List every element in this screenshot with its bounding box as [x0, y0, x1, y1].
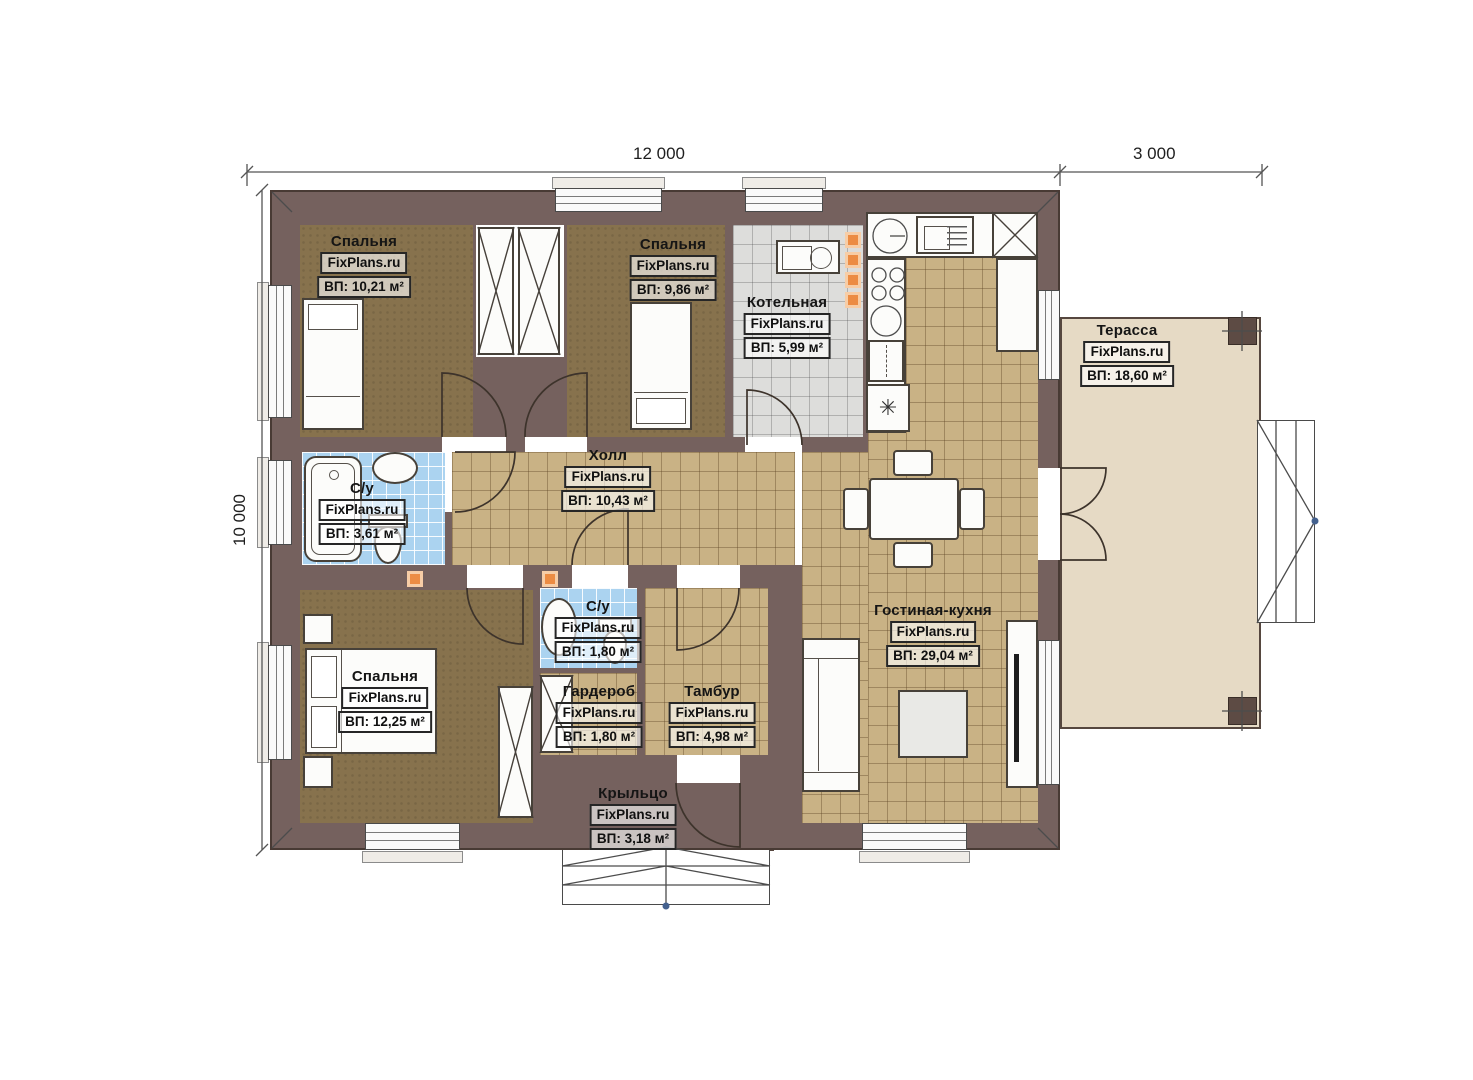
drainer-lines	[947, 226, 967, 248]
brand-watermark: FixPlans.ru	[744, 313, 831, 335]
nightstand	[303, 614, 333, 644]
door-opening-boiler	[745, 437, 802, 452]
room-label-boiler: Котельная FixPlans.ru ВП: 5,99 м²	[744, 294, 831, 359]
door-opening-terrace	[1038, 468, 1060, 560]
bed-single	[302, 298, 364, 430]
room-name: Гардероб	[563, 683, 636, 700]
coffee-table	[898, 690, 968, 758]
room-area: ВП: 1,80 м²	[556, 726, 642, 748]
room-name: С/у	[350, 480, 374, 497]
room-label-bedroom3: Спальня FixPlans.ru ВП: 12,25 м²	[338, 668, 432, 733]
tv-screen	[1014, 654, 1019, 762]
sofa-armrest	[804, 658, 858, 659]
room-name: Гостиная-кухня	[874, 602, 992, 619]
boiler-unit	[782, 246, 812, 270]
brand-watermark: FixPlans.ru	[321, 252, 408, 274]
column-marker	[845, 252, 861, 268]
door-opening-bath-main	[445, 452, 452, 512]
window	[745, 188, 823, 212]
window	[268, 645, 292, 760]
room-label-vestibule: Тамбур FixPlans.ru ВП: 4,98 м²	[669, 683, 756, 748]
wardrobe-box	[498, 686, 533, 818]
dim-width-terrace: 3 000	[1133, 144, 1176, 164]
room-area: ВП: 10,43 м²	[561, 490, 655, 512]
room-label-bath-main: С/у FixPlans.ru ВП: 3,61 м²	[319, 480, 406, 545]
door-opening-bedroom1	[442, 437, 506, 452]
dim-height: 10 000	[230, 485, 250, 555]
opening-hall-living	[795, 452, 802, 565]
blanket-line	[306, 396, 360, 397]
room-area: ВП: 4,98 м²	[669, 726, 755, 748]
chair	[959, 488, 985, 530]
dim-width-main: 12 000	[633, 144, 685, 164]
wardrobe-box	[478, 227, 514, 355]
pillow	[636, 398, 686, 424]
room-name: Холл	[589, 447, 627, 464]
window	[268, 285, 292, 418]
chair	[893, 450, 933, 476]
room-area: ВП: 10,21 м²	[317, 276, 411, 298]
washer-drum	[810, 247, 832, 269]
window	[268, 460, 292, 545]
room-area: ВП: 5,99 м²	[744, 337, 830, 359]
brand-watermark: FixPlans.ru	[669, 702, 756, 724]
pillow	[308, 304, 358, 330]
drain	[329, 470, 339, 480]
room-area: ВП: 1,80 м²	[555, 641, 641, 663]
bed-single	[630, 302, 692, 430]
room-area: ВП: 3,61 м²	[319, 523, 405, 545]
door-opening-bedroom3	[467, 565, 523, 588]
kitchen-sink-unit	[916, 216, 974, 254]
floor-plan: 12 000 3 000 10 000	[0, 0, 1473, 1080]
column-marker	[407, 571, 423, 587]
brand-watermark: FixPlans.ru	[890, 621, 977, 643]
room-label-wardrobe: Гардероб FixPlans.ru ВП: 1,80 м²	[556, 683, 643, 748]
window-sill	[859, 851, 970, 863]
dishwasher-line	[886, 345, 887, 377]
room-name: Тамбур	[684, 683, 740, 700]
door-opening-vestibule	[677, 565, 740, 588]
pillow	[311, 656, 337, 698]
column-marker	[845, 272, 861, 288]
wardrobe-box	[518, 227, 560, 355]
brand-watermark: FixPlans.ru	[630, 255, 717, 277]
room-name: Крыльцо	[598, 785, 668, 802]
sofa-backrest	[818, 658, 819, 771]
chair	[893, 542, 933, 568]
brand-watermark: FixPlans.ru	[590, 804, 677, 826]
room-area: ВП: 3,18 м²	[590, 828, 676, 850]
nightstand	[303, 756, 333, 788]
room-name: Терасса	[1097, 322, 1158, 339]
brand-watermark: FixPlans.ru	[555, 617, 642, 639]
door-opening-bath-small	[572, 565, 628, 588]
room-name: Спальня	[352, 668, 418, 685]
brand-watermark: FixPlans.ru	[319, 499, 406, 521]
fridge: ✳	[866, 384, 910, 432]
terrace-post	[1228, 317, 1257, 345]
window	[365, 823, 460, 850]
door-opening-porch	[677, 755, 740, 783]
room-name: С/у	[586, 598, 610, 615]
room-label-bedroom1: Спальня FixPlans.ru ВП: 10,21 м²	[317, 233, 411, 298]
window-sill	[362, 851, 463, 863]
pillow	[311, 706, 337, 748]
room-area: ВП: 18,60 м²	[1080, 365, 1174, 387]
terrace-stairs	[1257, 420, 1315, 623]
room-name: Спальня	[640, 236, 706, 253]
room-label-living-kitchen: Гостиная-кухня FixPlans.ru ВП: 29,04 м²	[874, 602, 992, 667]
window	[555, 188, 662, 212]
boiler-counter	[776, 240, 840, 274]
dishwasher	[868, 340, 904, 382]
chair	[843, 488, 869, 530]
room-area: ВП: 29,04 м²	[886, 645, 980, 667]
room-label-bath-small: С/у FixPlans.ru ВП: 1,80 м²	[555, 598, 642, 663]
room-name: Спальня	[331, 233, 397, 250]
brand-watermark: FixPlans.ru	[565, 466, 652, 488]
porch-steps	[562, 847, 770, 905]
room-area: ВП: 12,25 м²	[338, 711, 432, 733]
column-marker	[845, 292, 861, 308]
kitchen-cabinet-corner	[992, 212, 1038, 258]
pantry-cabinet	[996, 258, 1038, 352]
window	[862, 823, 967, 850]
tv-stand	[1006, 620, 1038, 788]
room-label-hall: Холл FixPlans.ru ВП: 10,43 м²	[561, 447, 655, 512]
room-label-terrace: Терасса FixPlans.ru ВП: 18,60 м²	[1080, 322, 1174, 387]
window	[1038, 640, 1060, 785]
brand-watermark: FixPlans.ru	[1084, 341, 1171, 363]
room-label-bedroom2: Спальня FixPlans.ru ВП: 9,86 м²	[630, 236, 717, 301]
column-marker	[845, 232, 861, 248]
sofa	[802, 638, 860, 792]
brand-watermark: FixPlans.ru	[342, 687, 429, 709]
room-name: Котельная	[747, 294, 827, 311]
window	[1038, 290, 1060, 380]
room-area: ВП: 9,86 м²	[630, 279, 716, 301]
blanket-line	[634, 392, 688, 393]
sofa-armrest	[804, 772, 858, 773]
terrace-post	[1228, 697, 1257, 725]
room-label-porch: Крыльцо FixPlans.ru ВП: 3,18 м²	[590, 785, 677, 850]
brand-watermark: FixPlans.ru	[556, 702, 643, 724]
column-marker	[542, 571, 558, 587]
dining-table	[869, 478, 959, 540]
